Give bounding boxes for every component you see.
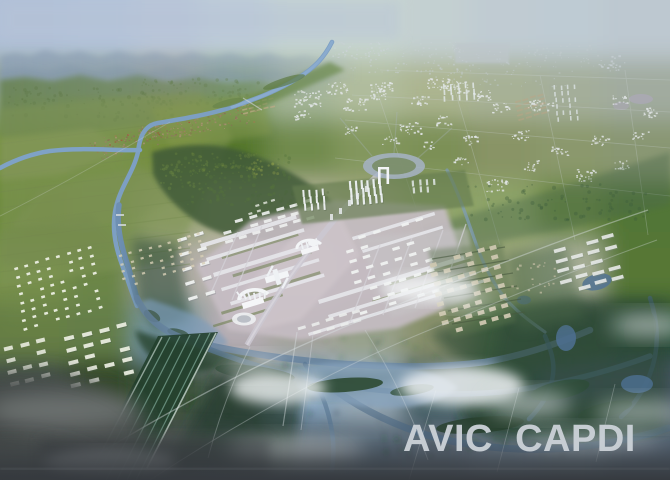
svg-text:AVIC CAPDI: AVIC CAPDI (403, 418, 636, 460)
